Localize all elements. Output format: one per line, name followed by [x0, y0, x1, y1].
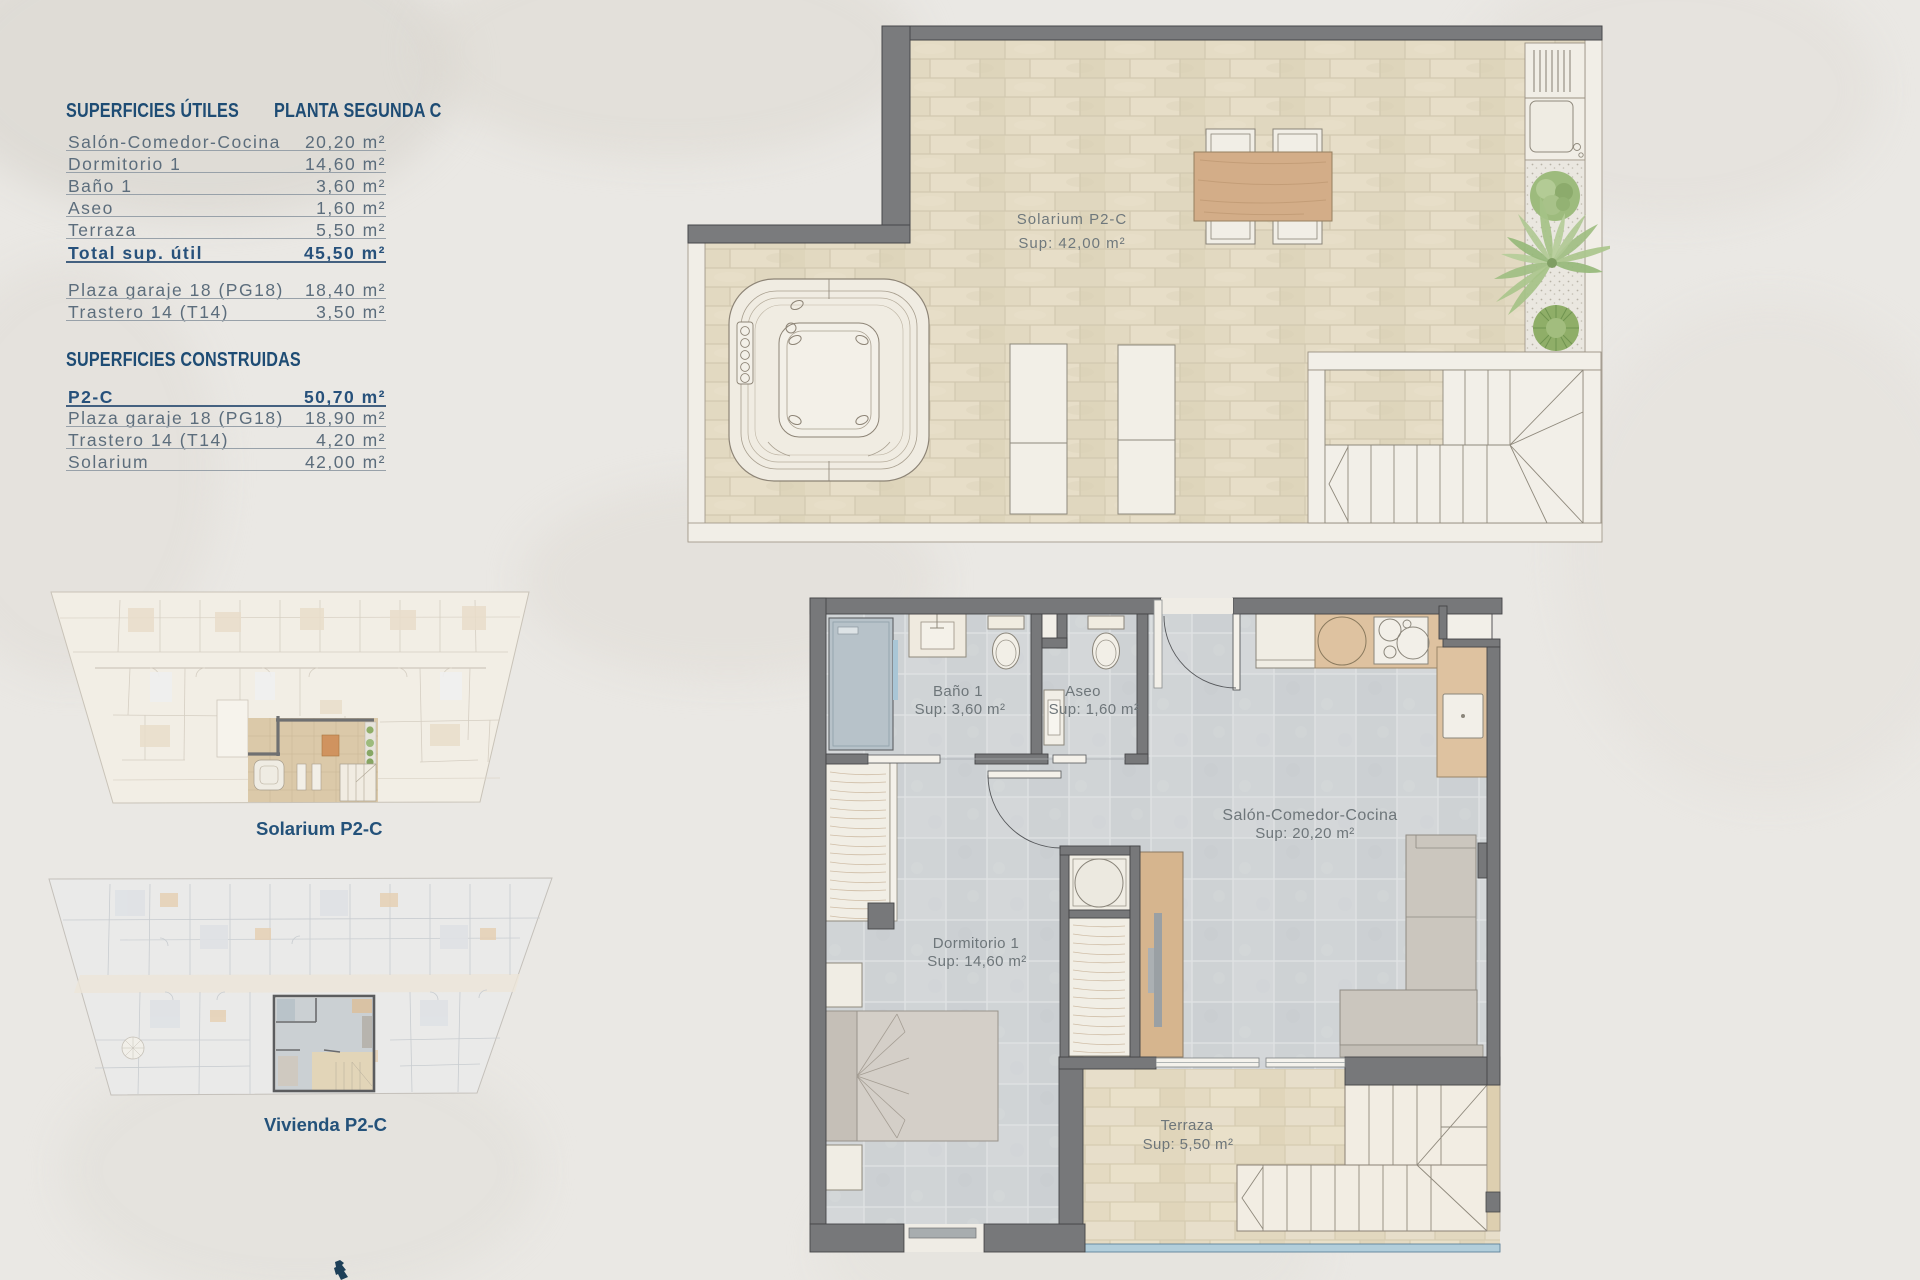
- svg-text:Solarium P2-C: Solarium P2-C: [1017, 211, 1128, 228]
- svg-text:Dormitorio 1: Dormitorio 1: [933, 935, 1020, 952]
- svg-text:Sup: 14,60 m²: Sup: 14,60 m²: [927, 953, 1026, 970]
- svg-text:Sup: 5,50 m²: Sup: 5,50 m²: [1143, 1136, 1234, 1153]
- svg-text:Aseo: Aseo: [1065, 683, 1101, 700]
- svg-text:Baño 1: Baño 1: [933, 683, 983, 700]
- svg-text:Sup: 3,60 m²: Sup: 3,60 m²: [915, 701, 1006, 718]
- svg-text:Sup: 20,20 m²: Sup: 20,20 m²: [1255, 825, 1354, 842]
- svg-text:Sup: 42,00 m²: Sup: 42,00 m²: [1018, 235, 1125, 252]
- svg-text:Terraza: Terraza: [1161, 1117, 1214, 1134]
- svg-text:Salón-Comedor-Cocina: Salón-Comedor-Cocina: [1222, 807, 1397, 824]
- svg-text:Sup: 1,60 m²: Sup: 1,60 m²: [1049, 701, 1140, 718]
